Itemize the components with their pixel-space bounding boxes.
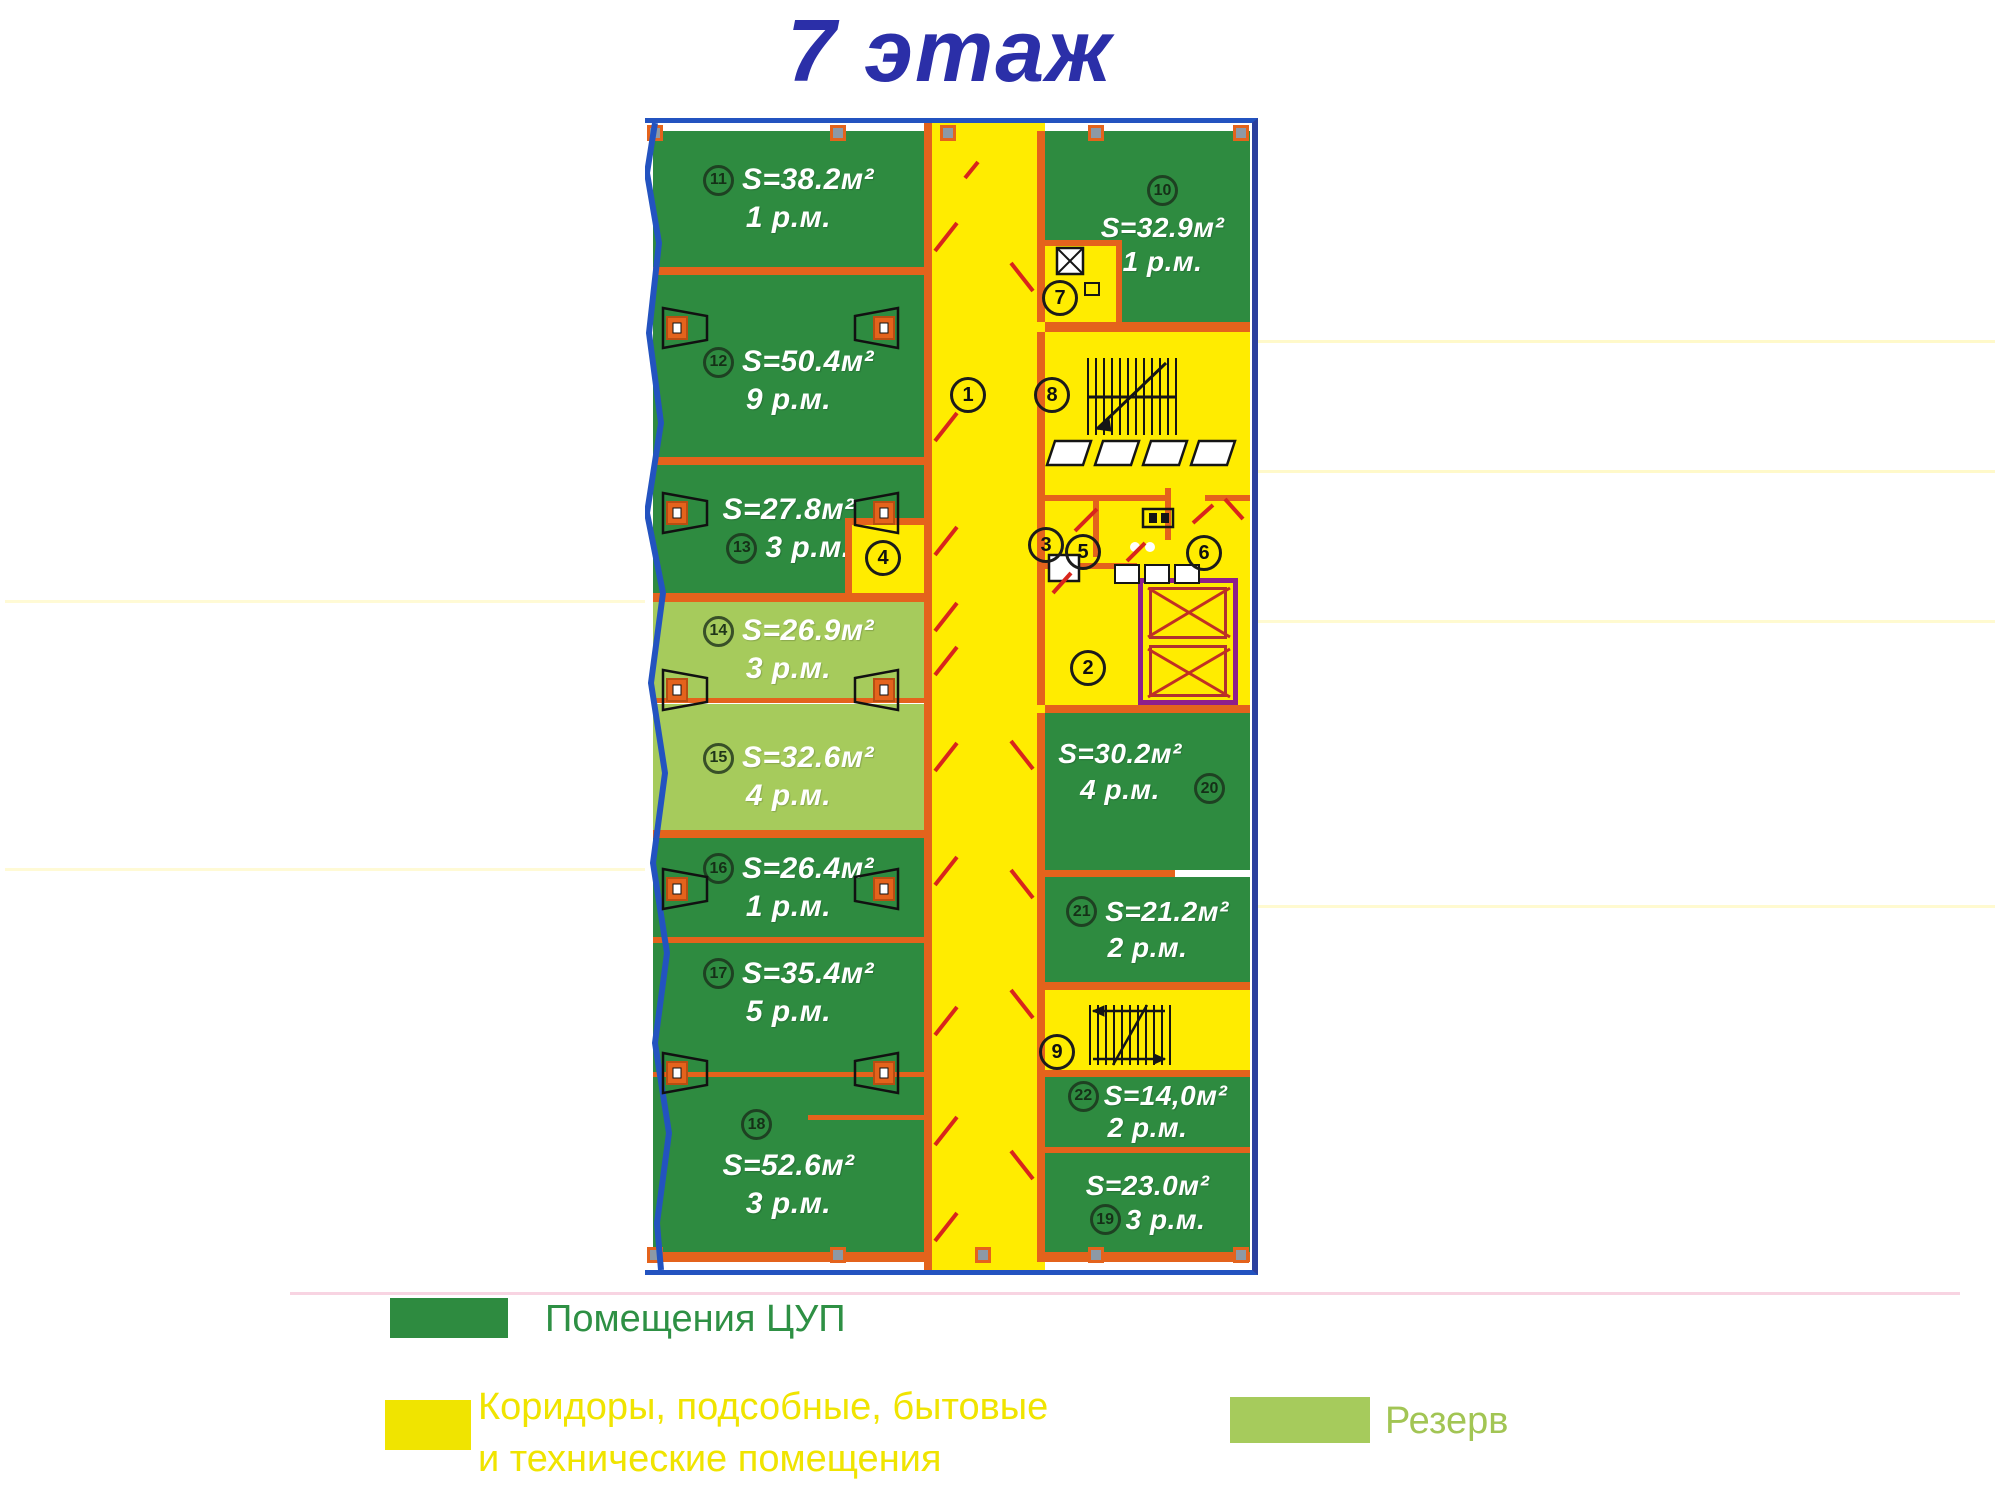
room-places: 3 р.м. xyxy=(765,531,850,565)
column-marker xyxy=(647,125,663,141)
corridor-right-wall xyxy=(1037,713,1045,1262)
room-places: 4 р.м. xyxy=(746,779,831,813)
room-number-badge: 15 xyxy=(703,743,734,774)
column-marker xyxy=(830,125,846,141)
elevator-shaft-block xyxy=(1138,578,1238,705)
room-area: S=26.9м² xyxy=(742,614,874,648)
room-area: S=14,0м² xyxy=(1104,1080,1228,1112)
room-area: S=38.2м² xyxy=(742,163,874,197)
legend-label-cup: Помещения ЦУП xyxy=(545,1298,846,1341)
room-17: 17 S=35.4м² 5 р.м. xyxy=(653,943,924,1072)
room-number-badge: 12 xyxy=(703,347,734,378)
corridor-left-wall xyxy=(924,123,932,1270)
outer-bottom-wall xyxy=(653,1252,924,1262)
legend-swatch-cup xyxy=(390,1298,508,1338)
room-places: 1 р.м. xyxy=(1123,246,1203,278)
legend-label-corridor-line1: Коридоры, подсобные, бытовые xyxy=(478,1386,1048,1429)
room-15: 15 S=32.6м² 4 р.м. xyxy=(653,704,924,830)
legend-swatch-reserve xyxy=(1230,1397,1370,1443)
room-20: S=30.2м² 4 р.м. 20 xyxy=(1045,713,1250,870)
legend-swatch-corridor xyxy=(385,1400,471,1450)
partition-wall xyxy=(1045,705,1250,713)
room-number-badge: 11 xyxy=(703,165,734,196)
partition-wall xyxy=(653,457,924,465)
scan-artifact xyxy=(1255,620,1995,623)
scan-artifact xyxy=(1255,905,1995,908)
column-marker xyxy=(1088,1247,1104,1263)
room-21: 21 S=21.2м² 2 р.м. xyxy=(1045,877,1250,982)
room-places: 2 р.м. xyxy=(1108,1112,1188,1144)
shaft-room-number: 7 xyxy=(1042,280,1078,316)
column-marker xyxy=(1088,125,1104,141)
room-places: 3 р.м. xyxy=(746,1187,831,1221)
scan-artifact xyxy=(1255,470,1995,473)
legend-label-corridor-line2: и технические помещения xyxy=(478,1438,941,1481)
legend-label-reserve: Резерв xyxy=(1385,1400,1508,1443)
scan-artifact xyxy=(5,868,645,871)
corridor-number: 1 xyxy=(950,377,986,413)
room-area: S=50.4м² xyxy=(742,345,874,379)
room-area: S=21.2м² xyxy=(1105,896,1229,928)
column-marker xyxy=(1233,125,1249,141)
column-marker xyxy=(1233,1247,1249,1263)
room-number-badge: 14 xyxy=(703,616,734,647)
column-marker xyxy=(647,1247,663,1263)
room-area: S=27.8м² xyxy=(722,493,854,527)
partition-line xyxy=(808,1115,924,1120)
room-14: 14 S=26.9м² 3 р.м. xyxy=(653,602,924,698)
partition-wall xyxy=(1045,870,1175,877)
service-room-number: 4 xyxy=(865,540,901,576)
room-places: 1 р.м. xyxy=(746,201,831,235)
scan-artifact xyxy=(5,600,645,603)
room-number-badge: 19 xyxy=(1090,1204,1121,1235)
scan-artifact xyxy=(1255,340,1995,343)
room-area: S=30.2м² xyxy=(1058,738,1182,770)
room-places: 2 р.м. xyxy=(1108,932,1188,964)
room-18: 18 S=52.6м² 3 р.м. xyxy=(653,1077,924,1252)
room-places: 5 р.м. xyxy=(746,995,831,1029)
floor-plan-page: 7 этаж 11 S=38.2м² 1 р.м. 12 S=50.4м² 9 … xyxy=(0,0,2000,1500)
partition-wall xyxy=(653,937,924,943)
column-marker xyxy=(830,1247,846,1263)
room-places: 3 р.м. xyxy=(746,652,831,686)
partition-wall xyxy=(653,267,924,275)
room-number-badge: 21 xyxy=(1066,896,1097,927)
room-area: S=23.0м² xyxy=(1086,1170,1210,1202)
wc-number: 3 xyxy=(1028,527,1064,563)
stairwell-number: 8 xyxy=(1034,377,1070,413)
scan-artifact xyxy=(290,1292,1960,1295)
room-19: S=23.0м² 19 3 р.м. xyxy=(1045,1153,1250,1252)
wc-partition xyxy=(1205,495,1250,501)
partition-line xyxy=(1045,1147,1250,1153)
room-places: 3 р.м. xyxy=(1126,1204,1206,1236)
elevator-lobby-number: 2 xyxy=(1070,650,1106,686)
room-number-badge: 17 xyxy=(703,958,734,989)
column-marker xyxy=(975,1247,991,1263)
elevator-car xyxy=(1149,645,1227,697)
outer-bottom-wall xyxy=(1037,1252,1250,1262)
room-area: S=26.4м² xyxy=(742,852,874,886)
wc-number: 5 xyxy=(1065,534,1101,570)
partition-wall xyxy=(1045,1070,1250,1077)
room-places: 9 р.м. xyxy=(746,383,831,417)
partition-wall xyxy=(653,830,924,838)
corridor-zone xyxy=(924,123,1045,1270)
partition-wall xyxy=(1045,322,1250,332)
elevator-car xyxy=(1149,587,1227,639)
room-number-badge: 18 xyxy=(741,1109,772,1140)
room-area: S=52.6м² xyxy=(722,1149,854,1183)
room-number-badge: 22 xyxy=(1068,1081,1099,1112)
room-places: 1 р.м. xyxy=(746,890,831,924)
room-16: 16 S=26.4м² 1 р.м. xyxy=(653,838,924,937)
lower-stairs-zone xyxy=(1045,990,1250,1070)
partition-line xyxy=(653,698,924,703)
room-number-badge: 10 xyxy=(1147,175,1178,206)
partition-line xyxy=(653,1072,924,1077)
room-places: 4 р.м. xyxy=(1080,774,1160,806)
room-number-badge: 13 xyxy=(726,533,757,564)
room-area: S=32.6м² xyxy=(742,741,874,775)
wc-partition xyxy=(1165,488,1171,540)
wc-partition xyxy=(1045,495,1165,501)
room-11: 11 S=38.2м² 1 р.м. xyxy=(653,131,924,267)
stairwell-number: 9 xyxy=(1039,1034,1075,1070)
partition-wall xyxy=(653,593,924,602)
floor-plan: 11 S=38.2м² 1 р.м. 12 S=50.4м² 9 р.м. S=… xyxy=(645,118,1258,1275)
column-marker xyxy=(940,125,956,141)
wc-number: 6 xyxy=(1186,535,1222,571)
room-number-badge: 20 xyxy=(1194,773,1225,804)
room-number-badge: 16 xyxy=(703,853,734,884)
partition-wall xyxy=(1045,982,1250,990)
room-22: 22 S=14,0м² 2 р.м. xyxy=(1045,1077,1250,1147)
room-12: 12 S=50.4м² 9 р.м. xyxy=(653,275,924,457)
page-title: 7 этаж xyxy=(787,0,1113,102)
room-area: S=35.4м² xyxy=(742,957,874,991)
